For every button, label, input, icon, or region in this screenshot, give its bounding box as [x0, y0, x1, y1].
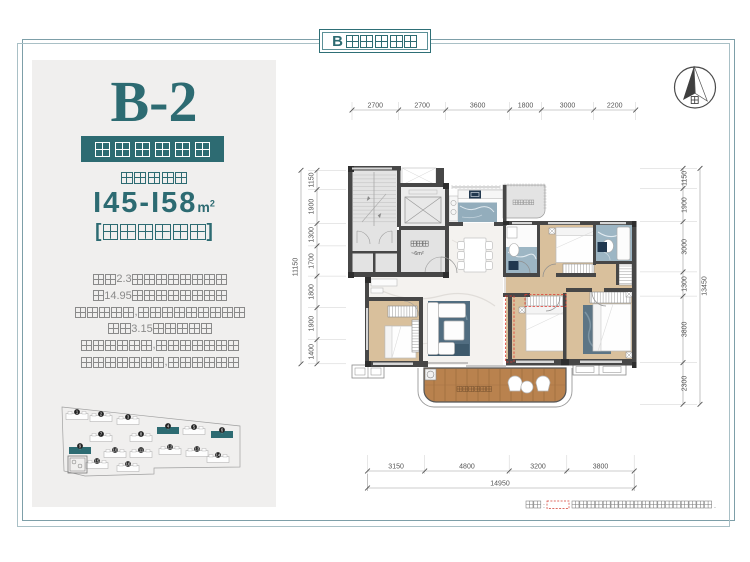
- svg-text:1900: 1900: [309, 316, 316, 332]
- svg-text:1150: 1150: [682, 171, 689, 186]
- svg-text::: :: [543, 503, 545, 510]
- svg-text:2300: 2300: [682, 376, 689, 392]
- svg-text:1900: 1900: [682, 197, 689, 213]
- svg-text:1150: 1150: [309, 172, 316, 187]
- svg-text:1800: 1800: [309, 284, 316, 300]
- svg-text:1400: 1400: [309, 344, 316, 360]
- svg-text:1700: 1700: [309, 253, 316, 269]
- svg-text:1300: 1300: [309, 227, 316, 243]
- svg-text:3000: 3000: [682, 239, 689, 255]
- svg-text:1900: 1900: [309, 199, 316, 215]
- svg-text:3800: 3800: [682, 321, 689, 337]
- svg-text:3000: 3000: [560, 103, 576, 110]
- svg-text:3600: 3600: [470, 103, 486, 110]
- svg-text:3200: 3200: [530, 464, 546, 471]
- svg-text:11150: 11150: [293, 258, 300, 277]
- svg-text:2700: 2700: [368, 103, 384, 110]
- svg-text:2200: 2200: [607, 103, 623, 110]
- svg-text:14950: 14950: [490, 481, 510, 488]
- svg-text:~6m²: ~6m²: [411, 251, 424, 257]
- svg-text:1800: 1800: [518, 103, 534, 110]
- svg-text:13450: 13450: [702, 276, 709, 296]
- svg-text:4800: 4800: [459, 464, 475, 471]
- svg-text:3150: 3150: [388, 464, 404, 471]
- svg-text:.: .: [714, 503, 716, 510]
- svg-text:3800: 3800: [593, 464, 609, 471]
- svg-text:2700: 2700: [414, 103, 430, 110]
- svg-text:1300: 1300: [682, 276, 689, 292]
